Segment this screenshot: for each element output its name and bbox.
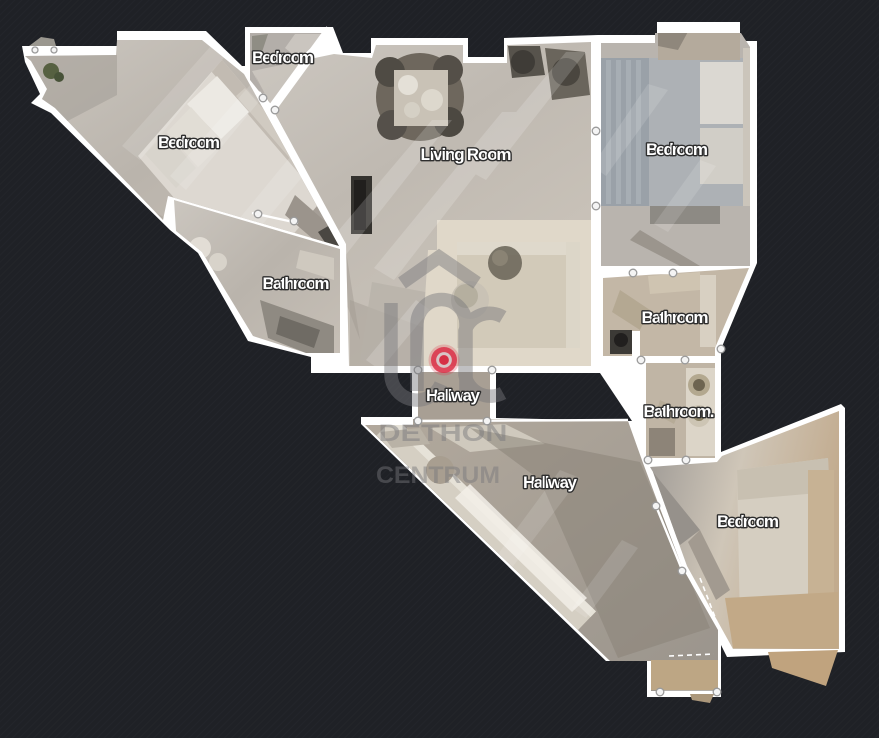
svg-text:Bedroom: Bedroom <box>646 140 708 159</box>
svg-text:Bathroom: Bathroom <box>642 308 709 327</box>
svg-text:Bedroom: Bedroom <box>158 133 220 152</box>
svg-text:CENTRUM: CENTRUM <box>376 462 500 489</box>
svg-text:Hallway: Hallway <box>426 386 481 405</box>
svg-text:Bedroom: Bedroom <box>252 48 314 67</box>
svg-text:DETHON: DETHON <box>379 420 508 447</box>
svg-text:Bedroom: Bedroom <box>717 512 779 531</box>
svg-text:Living Room: Living Room <box>421 145 512 164</box>
svg-text:Bathroom: Bathroom <box>263 274 330 293</box>
svg-text:Hallway: Hallway <box>523 473 578 492</box>
svg-text:Bathroom.: Bathroom. <box>644 402 715 421</box>
